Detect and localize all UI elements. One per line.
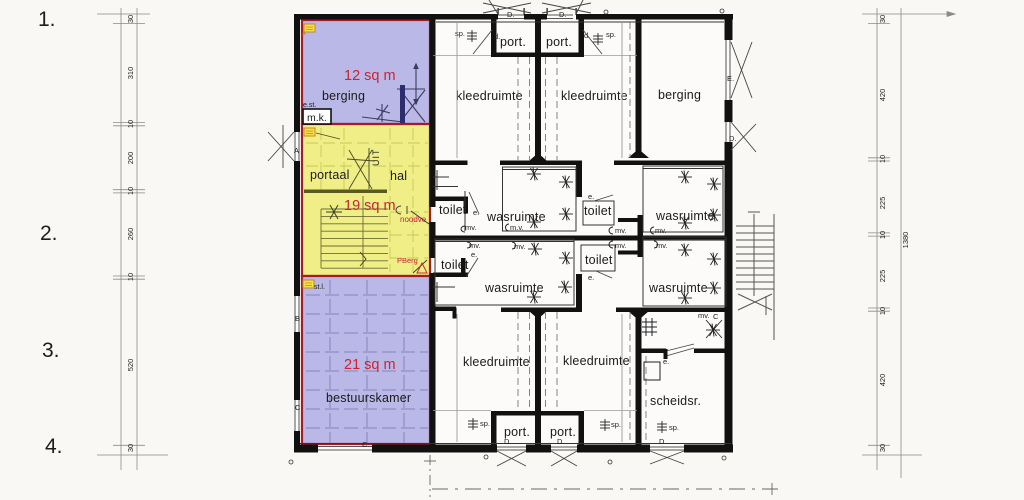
svg-text:D.: D. (504, 437, 512, 446)
svg-text:2.: 2. (40, 222, 58, 245)
svg-text:port.: port. (500, 35, 526, 49)
svg-text:d.: d. (494, 32, 500, 41)
svg-text:A: A (294, 146, 299, 155)
svg-text:520: 520 (126, 359, 135, 372)
svg-text:sp.: sp. (480, 419, 490, 428)
svg-text:200: 200 (126, 152, 135, 165)
svg-text:hal: hal (390, 169, 407, 183)
svg-text:mv.: mv. (615, 241, 627, 250)
svg-text:10: 10 (878, 155, 887, 163)
svg-text:m.v.: m.v. (510, 223, 524, 232)
svg-text:sp.: sp. (611, 420, 621, 429)
svg-text:PBerg: PBerg (397, 256, 418, 265)
svg-text:D.: D. (729, 134, 737, 143)
svg-text:e.st.: e.st. (303, 102, 316, 109)
svg-text:mv.: mv. (465, 223, 477, 232)
svg-text:10: 10 (878, 231, 887, 239)
svg-text:e.: e. (588, 273, 594, 282)
svg-text:sp.: sp. (669, 423, 679, 432)
svg-text:B: B (295, 314, 300, 323)
svg-text:toilet: toilet (584, 204, 612, 218)
svg-text:1.: 1. (38, 8, 56, 31)
svg-text:C.: C. (362, 440, 370, 449)
svg-text:portaal: portaal (310, 168, 350, 182)
svg-text:st.l.: st.l. (314, 284, 325, 291)
svg-text:30: 30 (878, 15, 887, 23)
svg-text:port.: port. (546, 35, 572, 49)
svg-text:mv.: mv. (698, 311, 710, 320)
svg-text:E.: E. (727, 74, 734, 83)
svg-text:toilet: toilet (441, 258, 469, 272)
svg-text:kleedruimte: kleedruimte (463, 355, 530, 369)
svg-text:mv.: mv. (615, 226, 627, 235)
svg-text:4.: 4. (45, 435, 63, 458)
svg-text:30: 30 (126, 444, 135, 452)
svg-text:C: C (295, 403, 301, 412)
svg-text:sp.: sp. (455, 29, 465, 38)
svg-text:UIT: UIT (371, 149, 381, 167)
svg-text:toilet: toilet (585, 253, 613, 267)
svg-text:kleedruimte: kleedruimte (456, 89, 523, 103)
svg-text:3.: 3. (42, 339, 60, 362)
svg-text:D.: D. (507, 10, 515, 19)
svg-text:bestuurskamer: bestuurskamer (326, 391, 411, 405)
svg-text:225: 225 (878, 270, 887, 283)
svg-text:420: 420 (878, 374, 887, 387)
svg-text:D.: D. (557, 437, 565, 446)
svg-text:21 sq m: 21 sq m (344, 357, 396, 373)
svg-text:berging: berging (658, 88, 701, 102)
svg-text:sp.: sp. (606, 30, 616, 39)
svg-text:30: 30 (126, 15, 135, 23)
svg-text:310: 310 (126, 67, 135, 80)
svg-text:scheidsr.: scheidsr. (650, 394, 701, 408)
svg-text:10: 10 (126, 120, 135, 128)
svg-text:1380: 1380 (901, 232, 910, 249)
svg-text:wasruimte: wasruimte (648, 281, 708, 295)
svg-text:10: 10 (126, 273, 135, 281)
svg-text:19 sq m: 19 sq m (344, 198, 396, 214)
svg-text:C: C (713, 312, 719, 321)
svg-text:260: 260 (126, 228, 135, 241)
svg-text:420: 420 (878, 89, 887, 102)
svg-text:mv.: mv. (655, 226, 667, 235)
svg-text:10: 10 (126, 187, 135, 195)
svg-text:toilet: toilet (439, 203, 467, 217)
svg-text:kleedruimte: kleedruimte (563, 354, 630, 368)
svg-text:e.: e. (588, 192, 594, 201)
svg-text:12 sq m: 12 sq m (344, 68, 396, 84)
svg-text:berging: berging (322, 89, 365, 103)
svg-text:D.: D. (559, 10, 567, 19)
svg-text:D.: D. (659, 437, 667, 446)
svg-text:e.: e. (471, 250, 477, 259)
svg-text:m.k.: m.k. (307, 112, 327, 124)
svg-text:30: 30 (878, 444, 887, 452)
svg-text:wasruimte: wasruimte (484, 281, 544, 295)
svg-text:225: 225 (878, 197, 887, 210)
svg-text:kleedruimte: kleedruimte (561, 89, 628, 103)
svg-text:10: 10 (878, 307, 887, 315)
